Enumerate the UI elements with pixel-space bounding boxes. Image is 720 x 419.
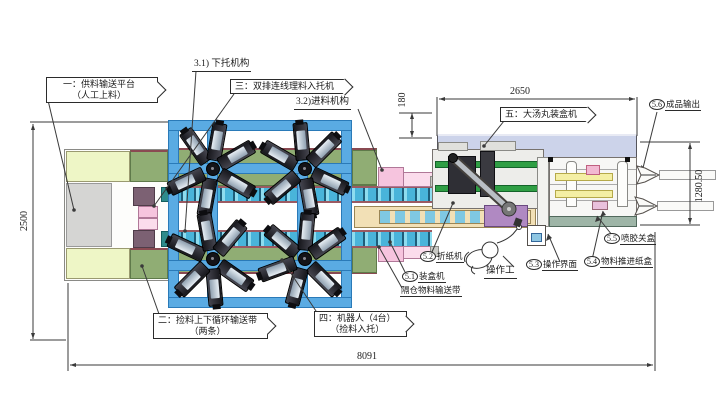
label-operator: 操作工: [484, 266, 517, 279]
callout-circulating-line2: （两条）: [158, 326, 257, 337]
dimension-infeed-offset: 180: [397, 80, 409, 120]
label-product-output-num: 5.6: [649, 99, 665, 110]
dimension-platform-depth: 2500: [19, 201, 31, 241]
callout-cartoner: 五：大汤丸装盒机: [500, 107, 588, 122]
label-compartment-conveyor: 隔仓物料输送带: [400, 285, 462, 295]
layout-drawing: 一：供料输送平台 （人工上料） 3.1) 下托机构 三：双排连线理料入托机 3.…: [0, 0, 720, 419]
label-push-material: 5.4物料推进纸盒: [584, 256, 653, 267]
label-cartoning-machine-num: 5.1: [402, 271, 418, 282]
callout-robots-line1: 四：机器人（4台）: [319, 313, 396, 323]
dimension-cartoner-length: 2650: [498, 86, 542, 98]
callout-supply-platform: 一：供料输送平台 （人工上料）: [46, 77, 158, 103]
callout-tray-loader: 三：双排连线理料入托机: [230, 79, 345, 94]
label-glue-close-num: 5.5: [604, 233, 620, 244]
label-cartoning-machine: 5.1装盒机: [402, 271, 446, 282]
label-folding-machine: 5.2折纸机: [420, 251, 464, 262]
label-product-output-text: 成品输出: [665, 99, 701, 111]
label-folding-machine-num: 5.2: [420, 251, 436, 262]
label-folding-machine-text: 折纸机: [436, 251, 464, 263]
dimension-total-length: 8091: [345, 351, 389, 363]
label-glue-close: 5.5喷胶关盒: [604, 233, 656, 244]
label-push-material-text: 物料推进纸盒: [600, 256, 653, 268]
callout-circulating-line1: 二：捡料上下循环输送带: [158, 315, 257, 325]
label-operator-interface: 5.3操作界面: [526, 259, 578, 270]
callout-circulating-conveyor: 二：捡料上下循环输送带 （两条）: [153, 313, 268, 339]
callout-cartoner-line1: 五：大汤丸装盒机: [505, 109, 577, 119]
label-glue-close-text: 喷胶关盒: [620, 233, 656, 245]
callout-supply-line1: 一：供料输送平台: [63, 79, 135, 89]
label-operator-interface-num: 5.3: [526, 259, 542, 270]
label-product-output: 5.6成品输出: [649, 99, 701, 110]
label-compartment-conveyor-text: 隔仓物料输送带: [400, 285, 462, 297]
label-cartoning-machine-text: 装盒机: [418, 271, 446, 283]
callout-supply-line2: （人工上料）: [51, 90, 147, 101]
labels-layer: 一：供料输送平台 （人工上料） 3.1) 下托机构 三：双排连线理料入托机 3.…: [0, 0, 720, 419]
callout-robots-line2: （捡料入托）: [319, 324, 396, 335]
label-operator-interface-text: 操作界面: [542, 259, 578, 271]
label-infeed-mechanism: 3.2)进料机构: [294, 97, 351, 110]
dimension-cartoner-width: 1280.50: [694, 158, 706, 214]
callout-robots: 四：机器人（4台） （捡料入托）: [314, 311, 407, 337]
label-push-material-num: 5.4: [584, 256, 600, 267]
callout-tray-loader-line1: 三：双排连线理料入托机: [235, 81, 334, 91]
label-lower-support: 3.1) 下托机构: [192, 59, 251, 72]
